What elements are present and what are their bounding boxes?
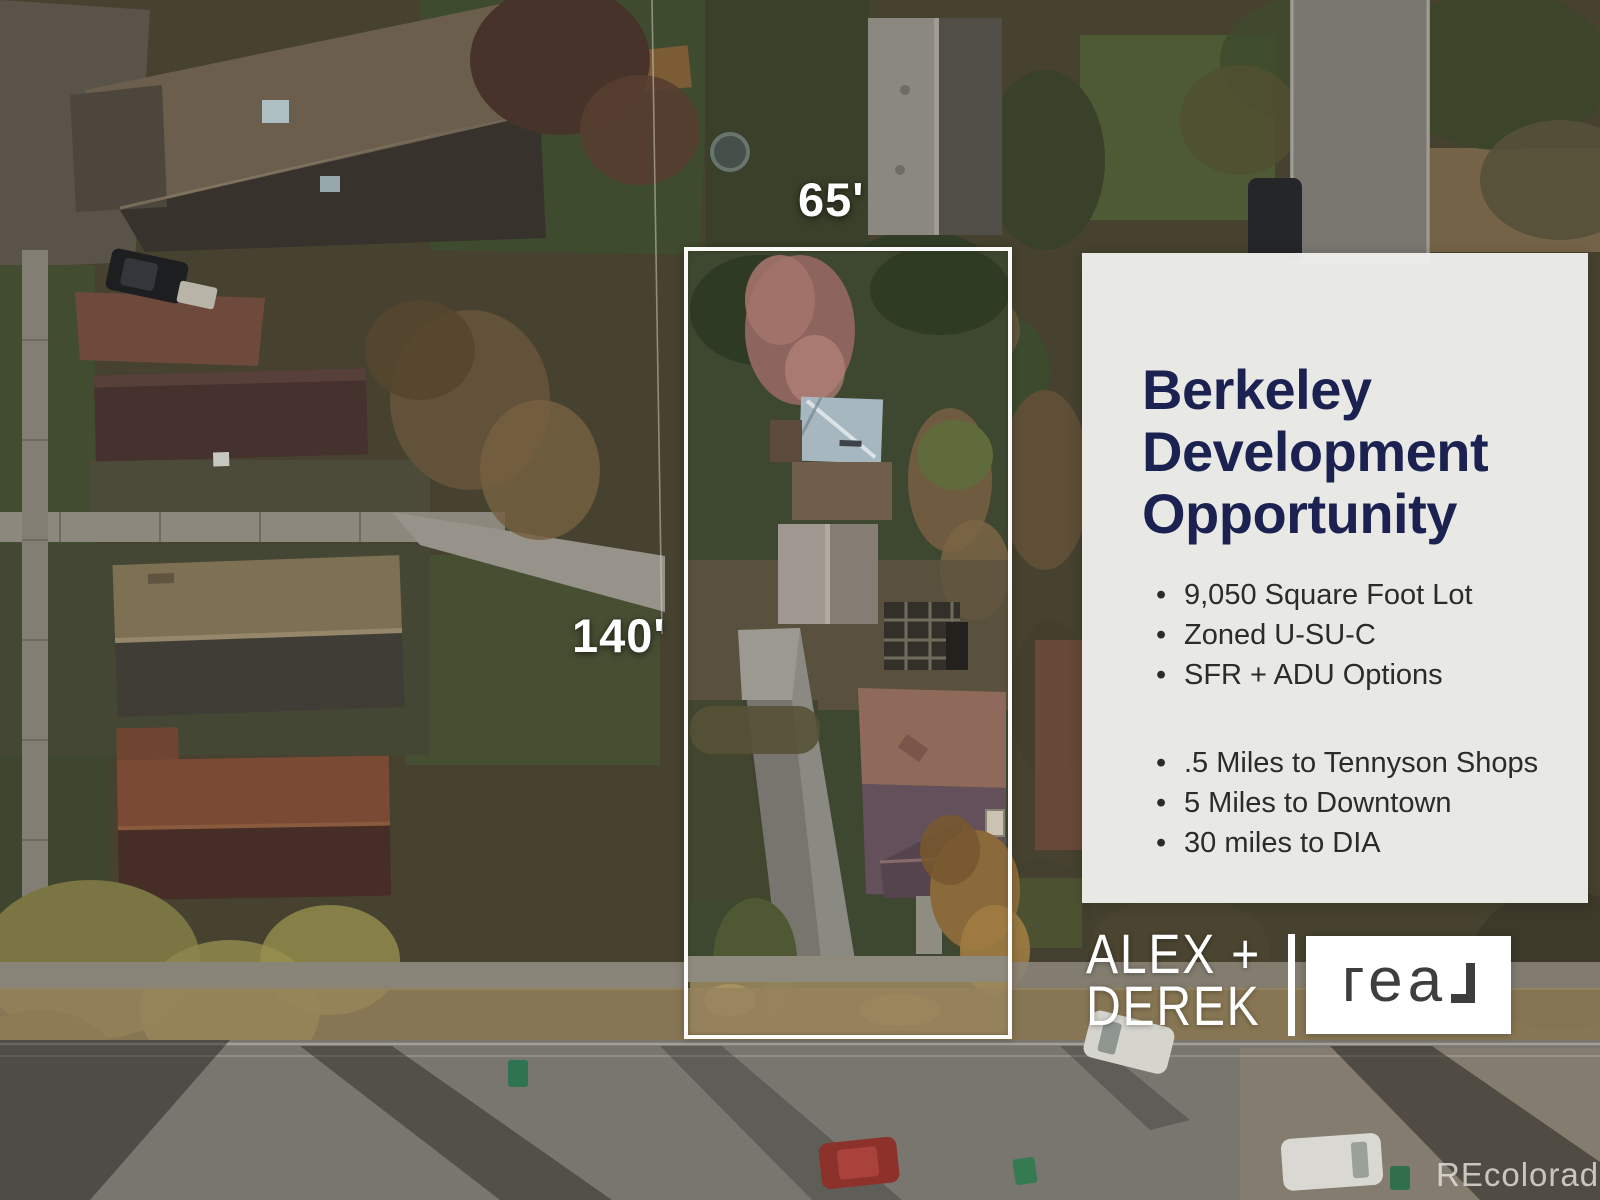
white-van <box>1280 1132 1383 1191</box>
agent-names: ALEX + DEREK <box>1086 928 1261 1032</box>
brand-divider <box>1288 934 1295 1036</box>
agent-name-line-1: ALEX + <box>1086 928 1261 980</box>
parked-suv <box>1248 178 1302 262</box>
house-right-of-lot <box>1035 640 1082 850</box>
red-car <box>818 1136 900 1190</box>
house-khaki <box>112 555 404 717</box>
recolorado-watermark: REcolorado <box>1436 1156 1600 1194</box>
listing-marketing-image: 65' 140' Berkeley Development Opportunit… <box>0 0 1600 1200</box>
house-mid-left <box>94 368 368 469</box>
list-item: .5 Miles to Tennyson Shops <box>1142 743 1572 783</box>
real-logo-l-glyph <box>1451 963 1475 1003</box>
house-top-middle <box>868 18 1002 235</box>
real-brokerage-logo: геа <box>1306 936 1511 1034</box>
lot-width-label: 65' <box>798 172 864 227</box>
list-item: 5 Miles to Downtown <box>1142 783 1572 823</box>
lot-depth-label: 140' <box>572 608 666 663</box>
lot-facts-list: 9,050 Square Foot Lot Zoned U-SU-C SFR +… <box>1142 575 1572 695</box>
card-title-line-2: Development <box>1142 421 1488 483</box>
card-title-line-1: Berkeley <box>1142 359 1488 421</box>
real-logo-letters: геа <box>1342 950 1447 1012</box>
card-title-line-3: Opportunity <box>1142 483 1488 545</box>
card-title: Berkeley Development Opportunity <box>1142 359 1488 545</box>
location-facts-list: .5 Miles to Tennyson Shops 5 Miles to Do… <box>1142 743 1572 863</box>
lot-boundary-outline <box>684 247 1012 1039</box>
list-item: 9,050 Square Foot Lot <box>1142 575 1572 615</box>
list-item: 30 miles to DIA <box>1142 823 1572 863</box>
list-item: Zoned U-SU-C <box>1142 615 1572 655</box>
agent-name-line-2: DEREK <box>1086 980 1261 1032</box>
list-item: SFR + ADU Options <box>1142 655 1572 695</box>
info-card: Berkeley Development Opportunity 9,050 S… <box>1082 253 1588 903</box>
